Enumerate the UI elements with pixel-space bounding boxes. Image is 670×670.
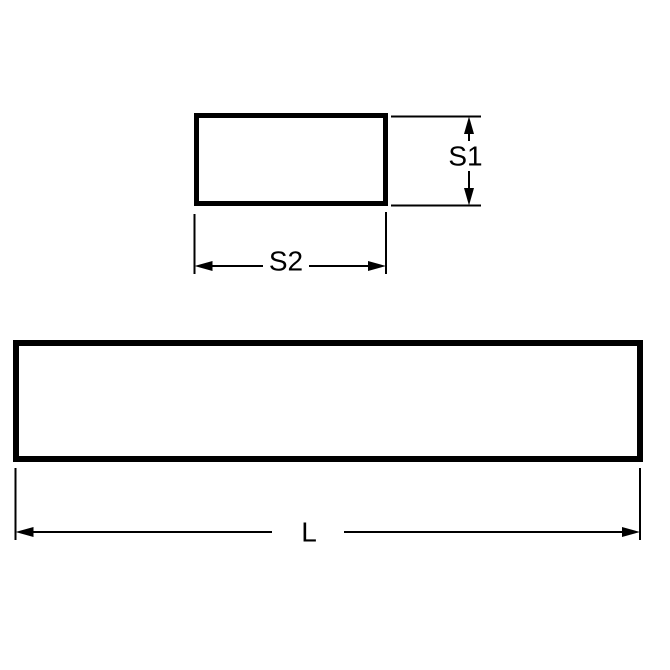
- canvas-background: [0, 0, 670, 670]
- s1-dimension-label: S1: [448, 141, 482, 172]
- keystock-dimension-drawing: S1 S2 L: [0, 0, 670, 670]
- s2-dimension-label: S2: [269, 246, 303, 277]
- drawing-page: S1 S2 L: [0, 0, 670, 670]
- l-dimension-label: L: [301, 517, 317, 548]
